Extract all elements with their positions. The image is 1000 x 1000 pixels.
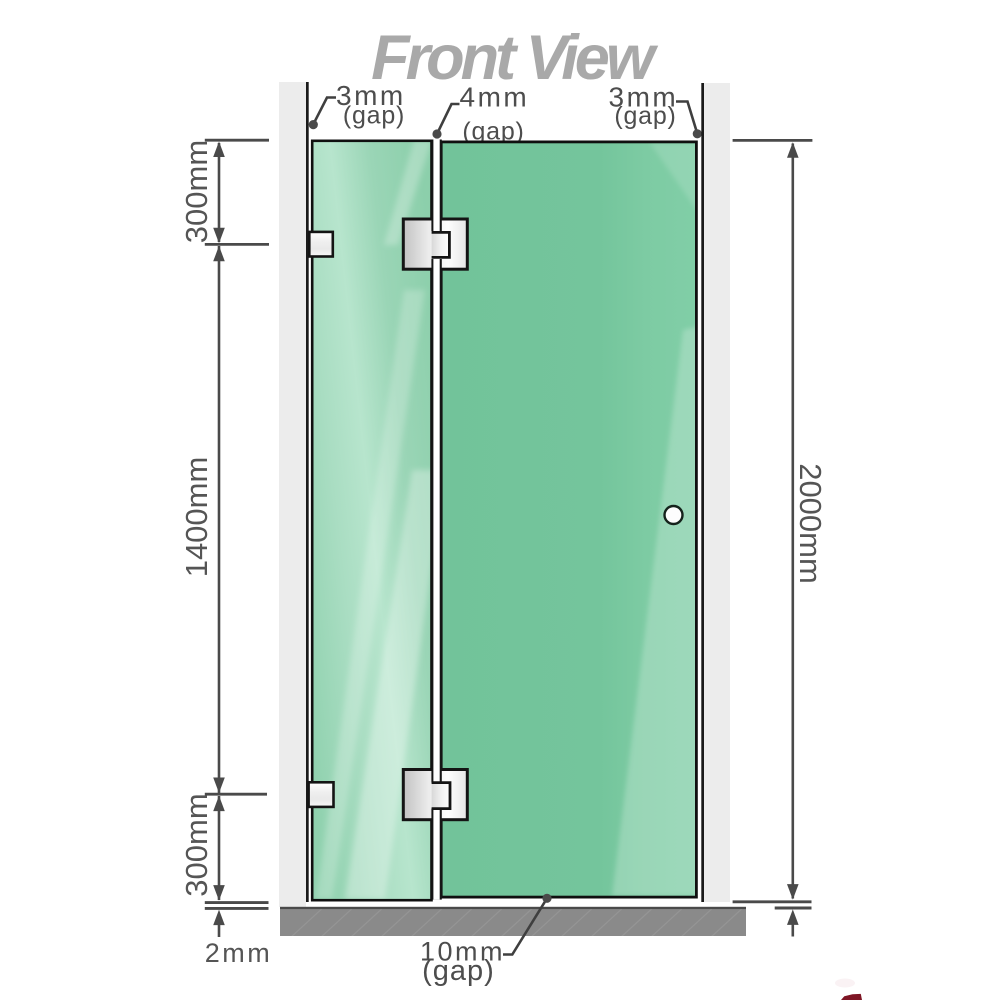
svg-text:(gap): (gap) xyxy=(343,102,405,130)
svg-text:2mm: 2mm xyxy=(205,938,273,968)
svg-text:300mm: 300mm xyxy=(179,140,214,243)
svg-text:4mm: 4mm xyxy=(460,82,530,113)
svg-text:1400mm: 1400mm xyxy=(179,457,214,578)
svg-text:(gap): (gap) xyxy=(614,102,676,130)
svg-text:300mm: 300mm xyxy=(179,793,214,896)
svg-text:2000mm: 2000mm xyxy=(793,463,828,584)
svg-text:(gap): (gap) xyxy=(422,955,495,987)
